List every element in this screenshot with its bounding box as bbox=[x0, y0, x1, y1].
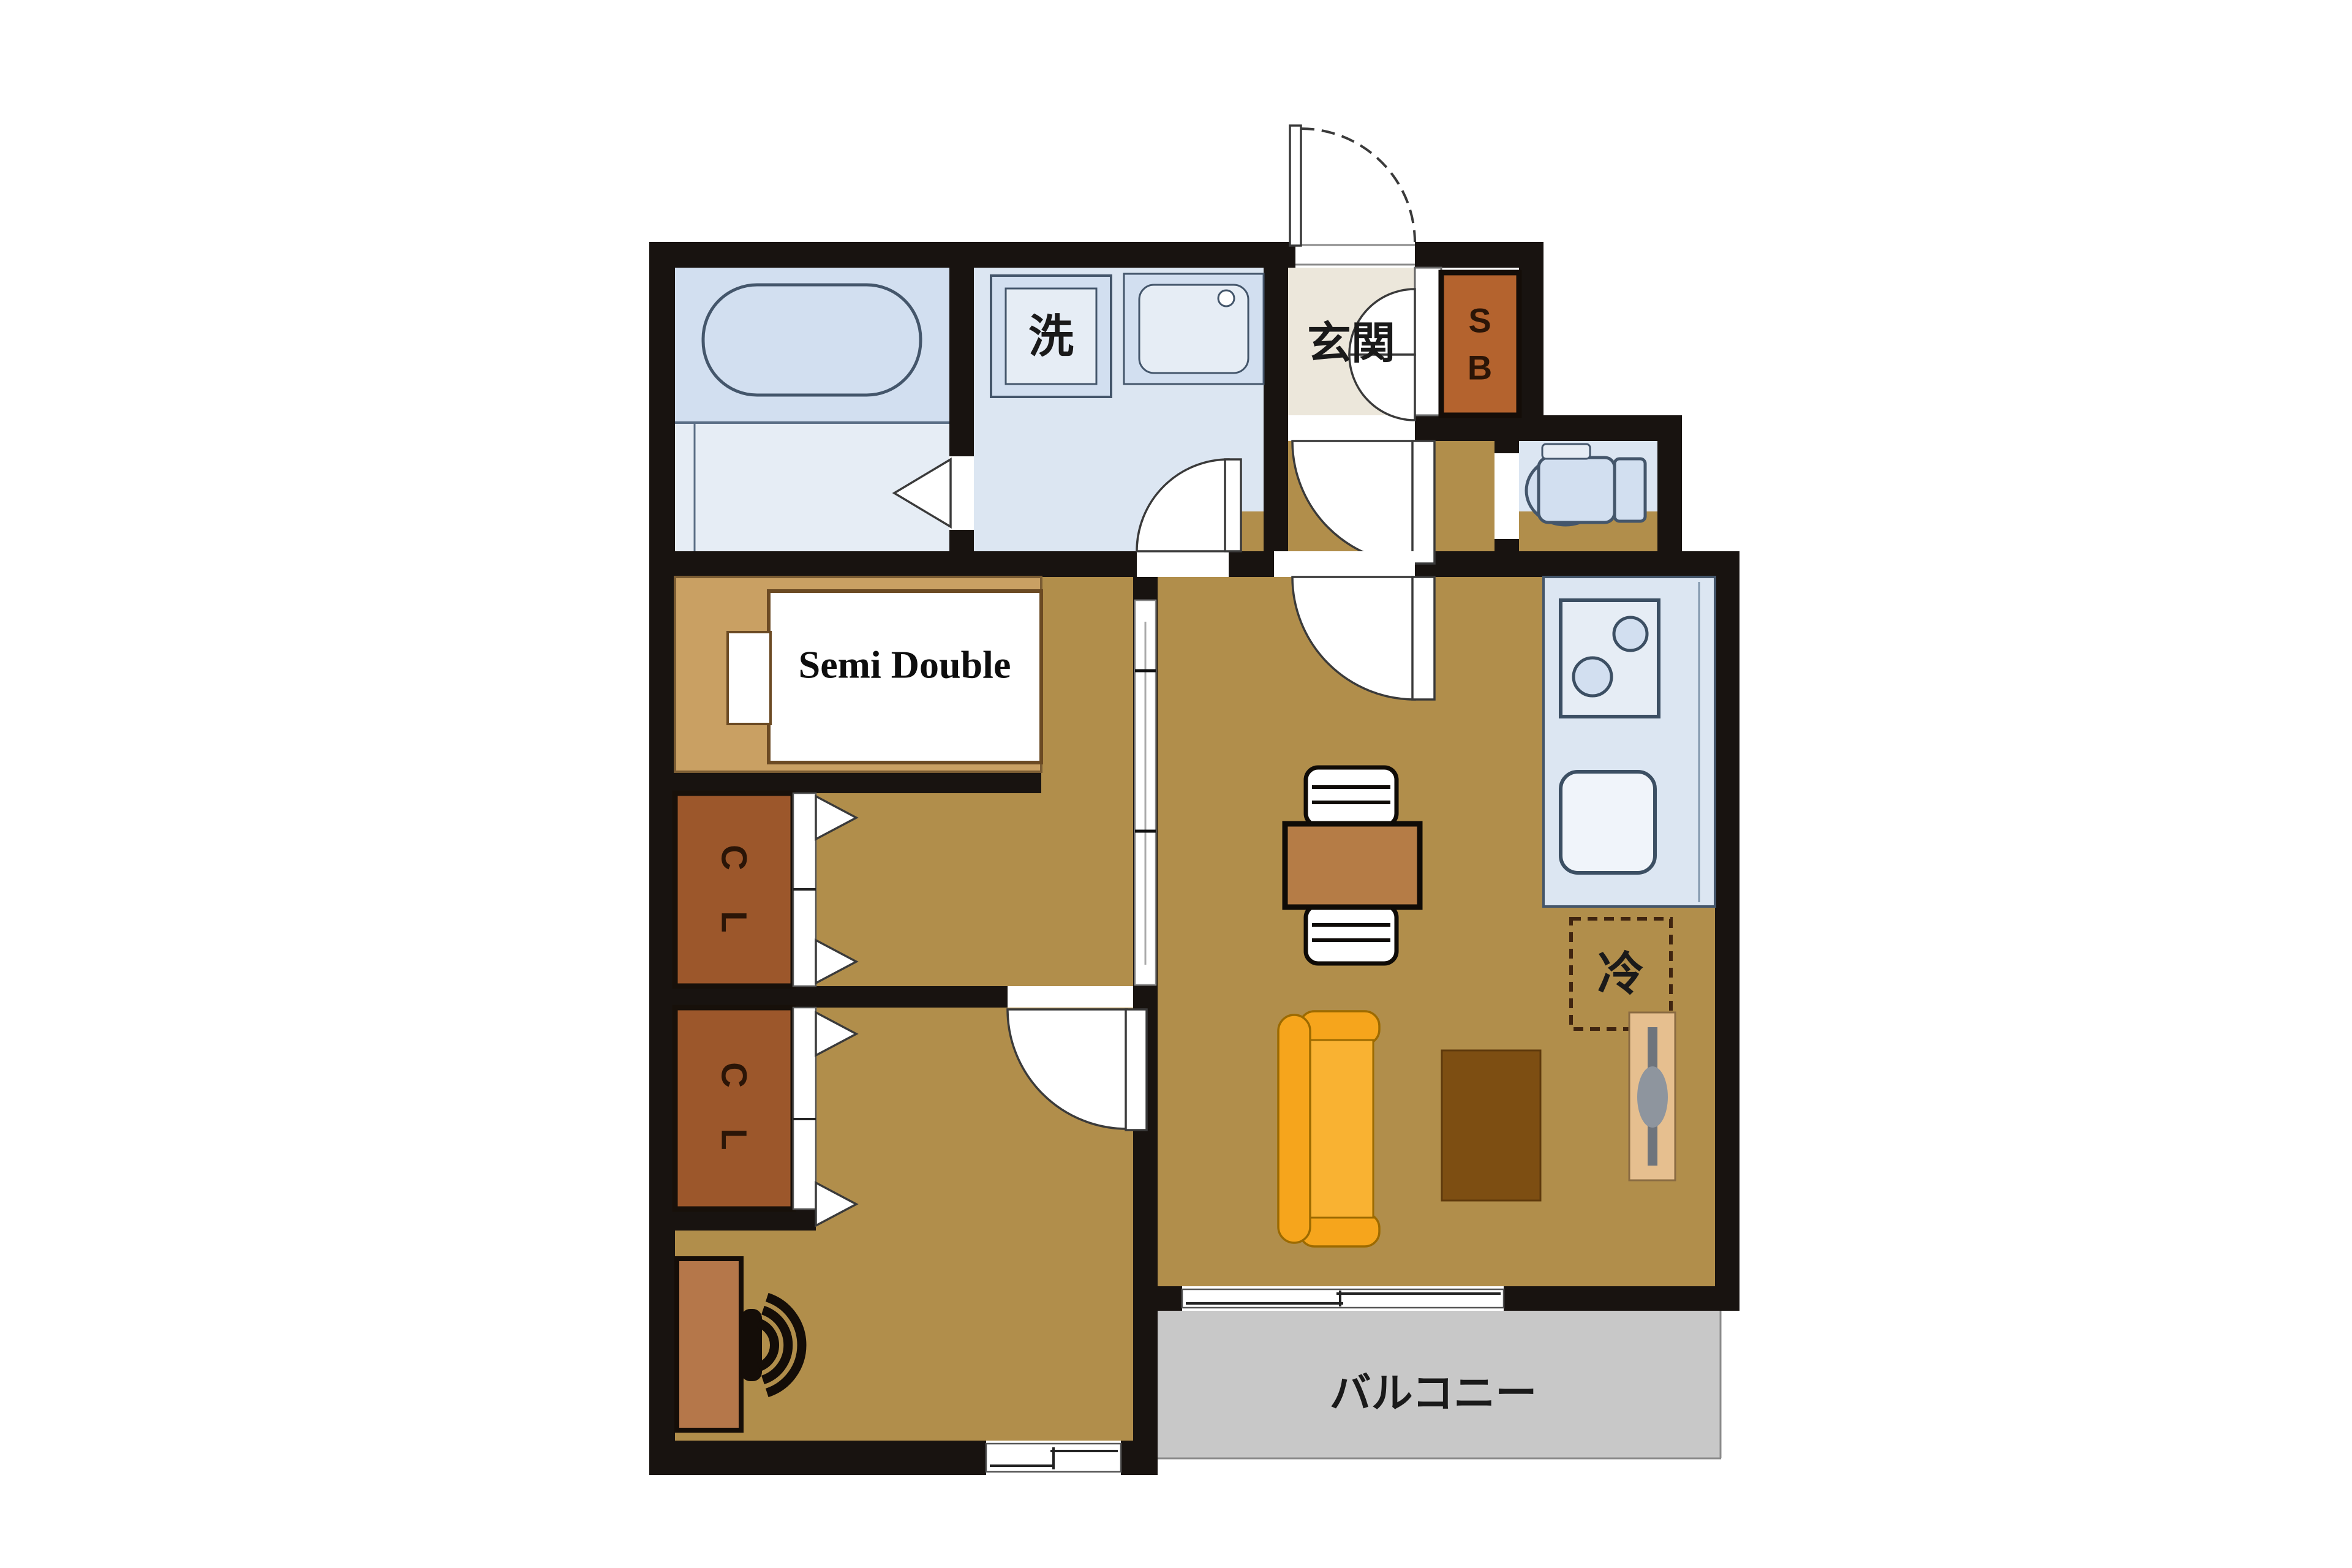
closet1 bbox=[675, 793, 793, 986]
sofa-backrest bbox=[1278, 1015, 1310, 1243]
floor-plan: 洗 玄関 S B Semi Double C L C L 冷 バルコニー bbox=[0, 0, 2352, 1568]
shoebox-label-b: B bbox=[1468, 349, 1492, 387]
toilet-seat bbox=[1539, 458, 1615, 522]
entrance-door-swing-arc bbox=[1301, 129, 1415, 242]
washroom-doorway bbox=[1137, 551, 1229, 577]
genkan-closet-door-strip bbox=[1415, 268, 1441, 415]
living-door-leaf bbox=[1412, 577, 1434, 699]
sofa bbox=[1278, 1011, 1379, 1246]
bedroom2-doorway bbox=[1008, 986, 1133, 1008]
shoebox-label-s: S bbox=[1468, 301, 1491, 340]
stove-burner-2 bbox=[1574, 658, 1611, 696]
living-doorway bbox=[1274, 551, 1415, 577]
closet2-label-c: C bbox=[714, 1062, 754, 1088]
bathtub bbox=[703, 285, 921, 395]
desk bbox=[677, 1259, 741, 1430]
dining-chair-top bbox=[1306, 767, 1396, 826]
bed-label: Semi Double bbox=[799, 643, 1011, 687]
bed-headboard bbox=[728, 632, 771, 724]
bathroom-doorway bbox=[949, 456, 974, 530]
hall-door-leaf bbox=[1412, 441, 1434, 563]
closet1-label-l: L bbox=[714, 911, 754, 932]
toilet-lid bbox=[1542, 444, 1590, 459]
sofa-seat bbox=[1310, 1040, 1373, 1218]
entrance-door-leaf bbox=[1290, 126, 1301, 246]
closet2 bbox=[675, 1008, 793, 1209]
closet2-door-strip bbox=[793, 1008, 816, 1209]
entrance-label: 玄関 bbox=[1307, 319, 1395, 368]
refrigerator-label: 冷 bbox=[1597, 949, 1644, 1001]
closet1-label-c: C bbox=[714, 845, 754, 870]
kitchen-sink bbox=[1561, 772, 1655, 873]
stove bbox=[1561, 600, 1659, 717]
closet2-label-l: L bbox=[714, 1128, 754, 1150]
basin-faucet bbox=[1218, 290, 1234, 306]
tv-stand bbox=[1637, 1066, 1668, 1128]
shoe-box bbox=[1441, 273, 1519, 415]
balcony-label: バルコニー bbox=[1330, 1370, 1537, 1417]
bedroom2-door-leaf bbox=[1126, 1009, 1147, 1130]
balcony-window bbox=[1182, 1289, 1504, 1308]
balcony-bottom-border bbox=[1158, 1458, 1740, 1474]
genkan-step-doorway bbox=[1288, 415, 1415, 441]
washroom-door-leaf bbox=[1225, 459, 1241, 551]
stove-burner-1 bbox=[1614, 617, 1647, 650]
toilet-doorway bbox=[1494, 453, 1519, 539]
desk-chair-back bbox=[741, 1309, 762, 1381]
rug bbox=[1442, 1050, 1540, 1200]
toilet-tank bbox=[1615, 459, 1645, 521]
balcony-right-border bbox=[1720, 1311, 1740, 1474]
laundry-label: 洗 bbox=[1028, 311, 1074, 362]
dining-table bbox=[1285, 824, 1420, 907]
dining-chair-bottom bbox=[1306, 905, 1396, 963]
